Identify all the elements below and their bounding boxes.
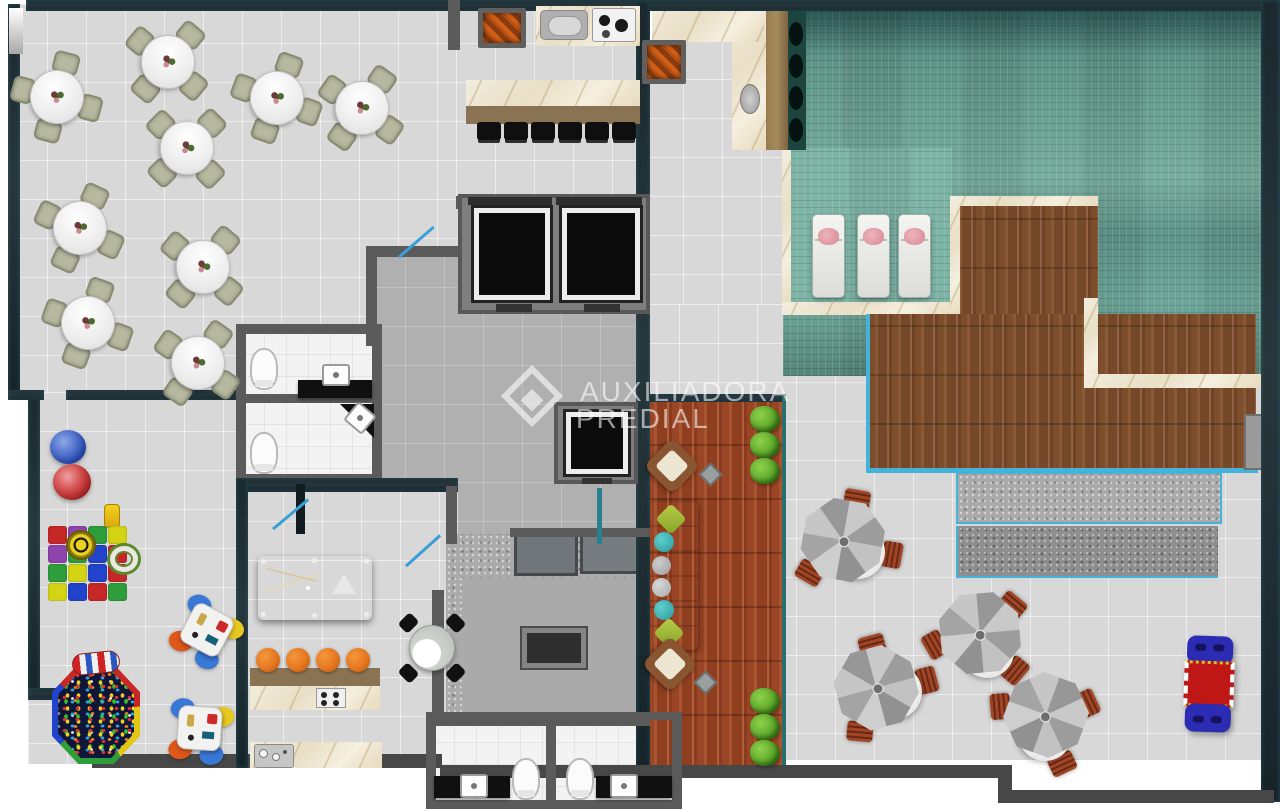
mat-tile — [108, 583, 127, 601]
deck-door-line — [597, 488, 602, 544]
wall-bbath-divider — [546, 712, 556, 808]
shrub — [750, 688, 780, 714]
wall-playroom-top-a — [8, 390, 44, 400]
deck-edge-left — [866, 314, 870, 472]
sink-4 — [610, 774, 638, 798]
sofa-pillow-teal-1 — [654, 532, 674, 552]
bar-stool — [504, 122, 528, 140]
closet-1 — [514, 534, 578, 576]
toy-block — [187, 714, 195, 726]
toy-block — [191, 631, 199, 639]
gourmet-cooktop — [316, 688, 346, 708]
pool-lounger — [898, 214, 931, 298]
bar-stool — [585, 122, 609, 140]
toy-block — [215, 620, 229, 634]
wall-right — [1261, 0, 1280, 802]
bar-stool — [612, 122, 636, 140]
mat-tile — [88, 583, 107, 601]
elevator-sill-3 — [582, 478, 612, 484]
elevator-1 — [474, 208, 550, 300]
pool-ext-border-bottom — [1084, 374, 1262, 388]
umbrella-icon — [993, 662, 1099, 768]
bar-stool — [558, 122, 582, 140]
elevator-2 — [562, 208, 640, 300]
wall-terrace-bottom-right — [1010, 790, 1274, 803]
shrub — [750, 714, 780, 740]
wall-hall-top — [366, 246, 462, 257]
wet-deck-border-left — [782, 148, 791, 308]
pool-deck-main — [866, 314, 1256, 472]
elevator-lintel-2 — [556, 197, 642, 205]
sink-3 — [460, 774, 488, 798]
pool-lounger — [812, 214, 845, 298]
mat-tile — [88, 564, 107, 582]
pouf-red — [53, 464, 91, 500]
pool-table — [258, 556, 372, 620]
kids-table-top — [176, 705, 223, 752]
wall-game-top — [240, 478, 458, 492]
cooktop — [592, 8, 636, 42]
deck-trim-left — [950, 196, 960, 316]
gourmet-stool — [316, 648, 340, 672]
bar-stool — [477, 122, 501, 140]
pool-spa-edge — [786, 8, 806, 150]
round-dining-set — [402, 618, 462, 678]
stone-bench-lower — [956, 526, 1218, 578]
toy-block — [207, 714, 218, 725]
mat-tile — [48, 545, 67, 563]
gourmet-stool — [286, 648, 310, 672]
elevator-lintel-1 — [468, 197, 552, 205]
play-structure — [1182, 635, 1237, 733]
shrub — [750, 740, 780, 766]
gourmet-counter-top — [250, 686, 380, 710]
bar-counter-top — [466, 80, 640, 108]
pool-lounger — [857, 214, 890, 298]
deck-trim-top — [950, 196, 1098, 206]
pouf-blue — [50, 430, 86, 464]
toy-block — [202, 731, 214, 739]
toilet-3 — [512, 758, 540, 800]
stair-flight-top — [462, 578, 644, 630]
toilet-2 — [250, 432, 278, 474]
floor-plan: AUXILIADORA PREDIAL — [0, 0, 1280, 811]
mat-tile — [48, 564, 67, 582]
umbrella-table-set — [783, 480, 913, 610]
diamond-logo — [501, 365, 563, 427]
pool-shade — [783, 8, 1262, 56]
wall-hall-mid — [446, 486, 457, 544]
sofa-pillow-gray-1 — [652, 556, 671, 575]
play-structure-slide — [1183, 660, 1235, 708]
elevator-sill-2 — [584, 304, 620, 312]
toilet-4 — [566, 758, 594, 800]
kitchen-sink-unit — [540, 10, 588, 40]
watermark: AUXILIADORA PREDIAL — [498, 366, 798, 436]
outdoor-shower-base — [740, 84, 760, 114]
mat-tile — [68, 564, 87, 582]
counter-appliance — [254, 744, 294, 768]
mat-tile — [108, 526, 127, 544]
toy-doll — [104, 504, 120, 528]
round-table-top — [409, 625, 455, 671]
stair-flight-bottom — [462, 668, 644, 718]
barbecue-grill-1 — [478, 8, 526, 48]
elevator-sill-1 — [496, 304, 532, 312]
wall-bbath-right — [672, 712, 682, 808]
mat-tile — [48, 583, 67, 601]
stair-landing — [522, 628, 586, 668]
ball-pit — [52, 664, 140, 764]
pool-deck-upper — [950, 196, 1098, 316]
stone-bench-upper — [956, 472, 1222, 524]
toy-ring — [110, 546, 138, 572]
wall-top — [26, 0, 1280, 11]
walkway-marble-top — [652, 6, 764, 42]
umbrella-icon — [827, 639, 925, 737]
sink-1 — [322, 364, 350, 386]
wall-playroom-left — [28, 390, 40, 700]
play-structure-bottom — [1184, 703, 1231, 733]
entry-door-leaf — [9, 8, 23, 54]
wall-bath-top — [236, 324, 382, 334]
gourmet-stool — [346, 648, 370, 672]
toy-block — [205, 634, 219, 646]
sofa-pillow-gray-2 — [652, 578, 671, 597]
watermark-line2: PREDIAL — [576, 403, 710, 435]
mat-tile — [68, 583, 87, 601]
kids-table-set — [161, 691, 240, 770]
barbecue-grill-2 — [642, 40, 686, 84]
bar-stool — [531, 122, 555, 140]
toy-block — [196, 612, 208, 626]
shrub — [750, 458, 780, 484]
wall-closet-top — [510, 528, 650, 537]
toy-top — [66, 530, 96, 560]
mat-tile — [48, 526, 67, 544]
gourmet-stool — [256, 648, 280, 672]
toy-block — [188, 734, 194, 740]
sofa-pillow-teal-2 — [654, 600, 674, 620]
wall-kitchen-left — [448, 0, 460, 50]
ball-rack — [332, 574, 356, 594]
closet-2 — [580, 532, 642, 574]
